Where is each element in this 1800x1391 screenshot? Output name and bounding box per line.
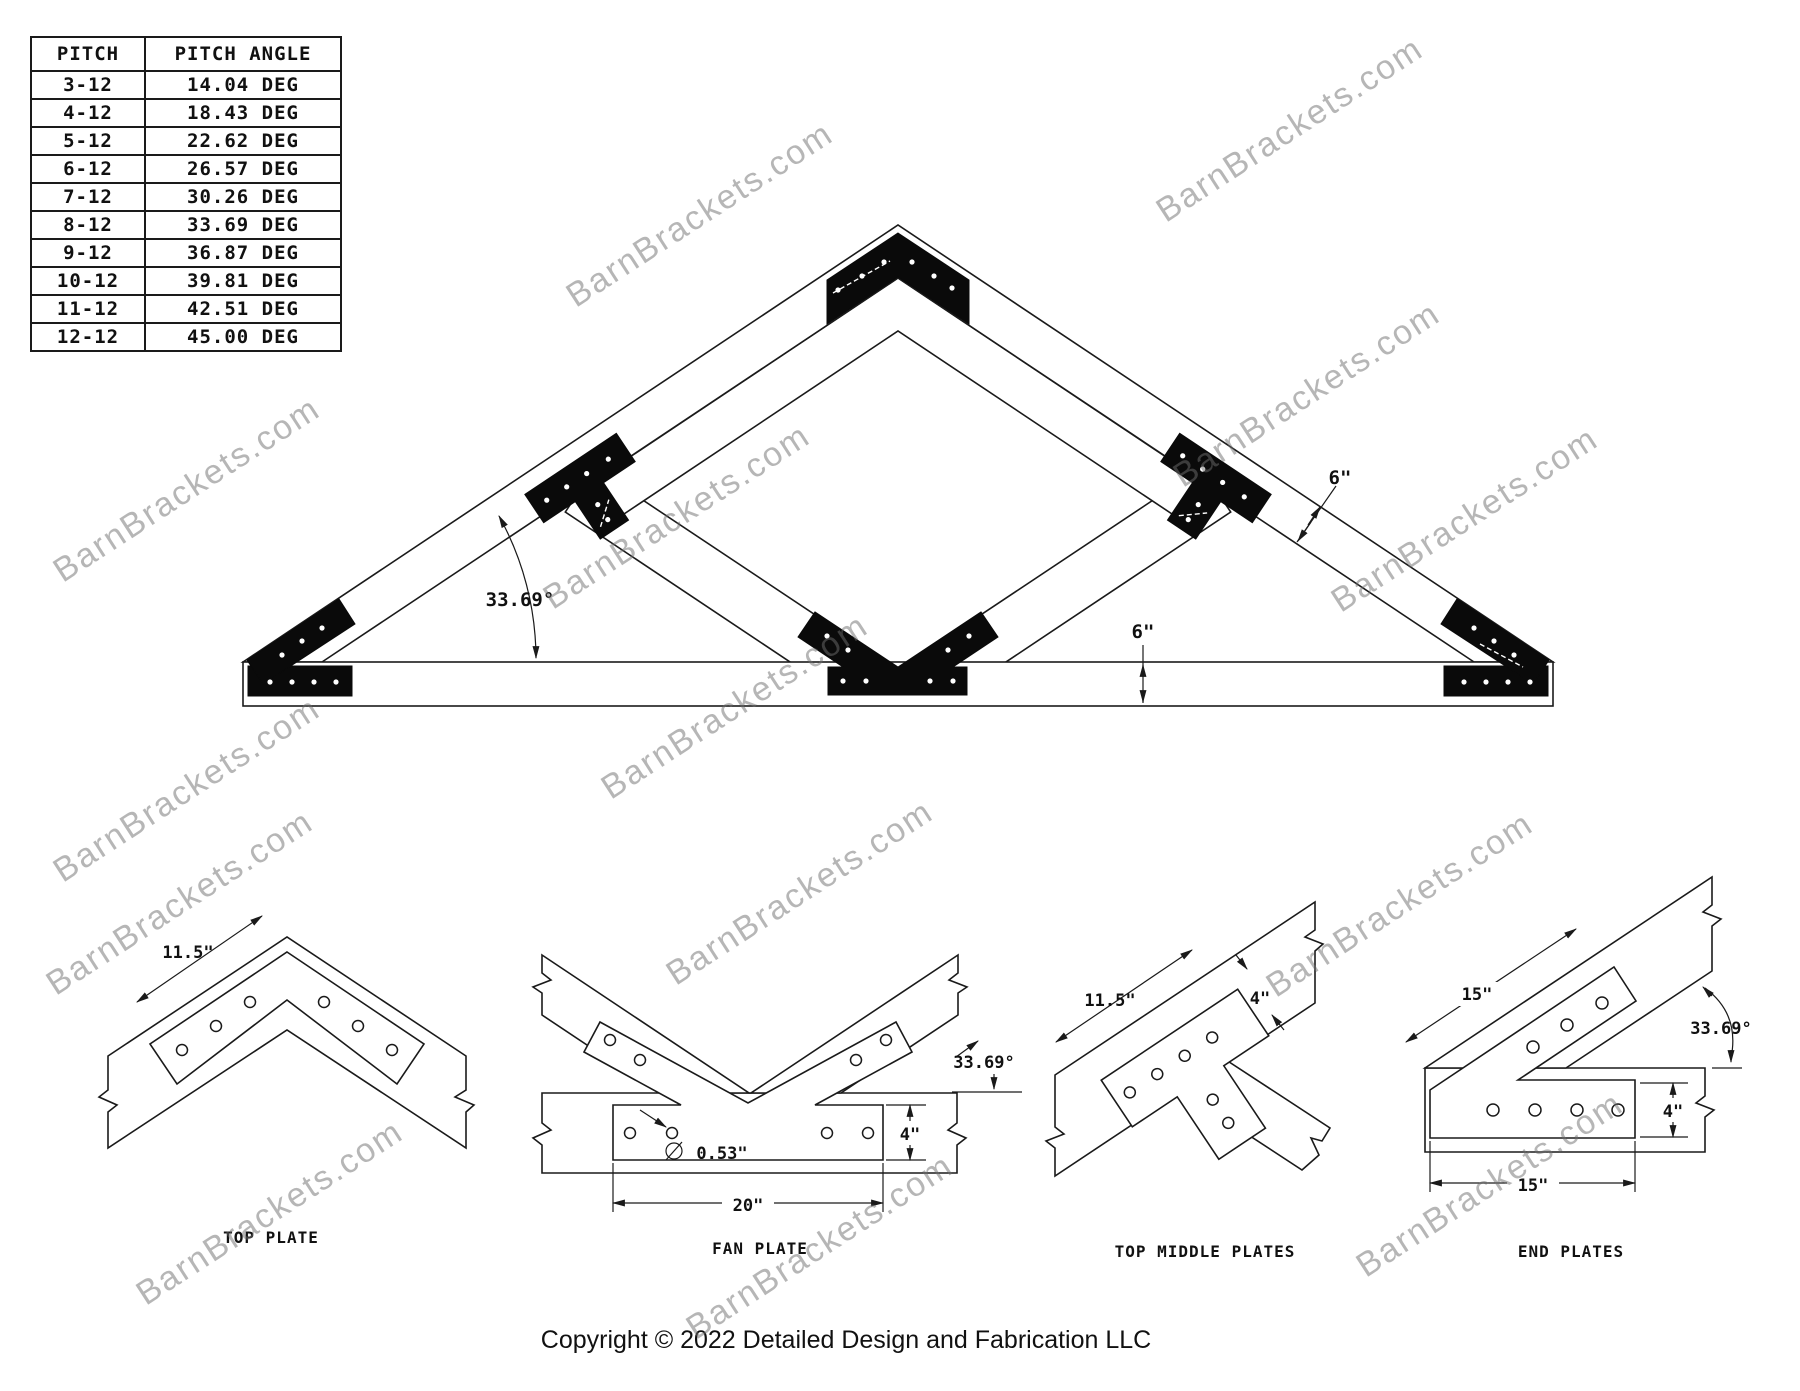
fan-width-value: 20" xyxy=(733,1196,764,1216)
fan-height-value: 4" xyxy=(900,1125,920,1145)
ep-bottom-dim-value: 15" xyxy=(1518,1176,1549,1196)
pitch-angle-cell: 39.81 DEG xyxy=(145,267,341,295)
page-canvas: BarnBrackets.comBarnBrackets.comBarnBrac… xyxy=(0,0,1800,1391)
fan-angle-value: 33.69° xyxy=(953,1053,1014,1073)
pitch-table-row: 3-1214.04 DEG xyxy=(31,71,341,99)
pitch-table-row: 11-1242.51 DEG xyxy=(31,295,341,323)
pitch-table-row: 10-1239.81 DEG xyxy=(31,267,341,295)
pitch-table: PITCH PITCH ANGLE 3-1214.04 DEG4-1218.43… xyxy=(30,36,342,352)
pitch-table-header-row: PITCH PITCH ANGLE xyxy=(31,37,341,71)
pitch-cell: 4-12 xyxy=(31,99,145,127)
top-middle-plates-label: TOP MIDDLE PLATES xyxy=(1115,1242,1296,1261)
truss-angle-value: 33.69° xyxy=(486,589,555,611)
pitch-angle-cell: 33.69 DEG xyxy=(145,211,341,239)
pitch-cell: 5-12 xyxy=(31,127,145,155)
pitch-table-row: 7-1230.26 DEG xyxy=(31,183,341,211)
ep-height-value: 4" xyxy=(1663,1102,1683,1122)
detail-fan-plate: 0.53" 20" 4" 3 xyxy=(533,955,1022,1258)
pitch-table-row: 8-1233.69 DEG xyxy=(31,211,341,239)
pitch-table-row: 12-1245.00 DEG xyxy=(31,323,341,351)
pitch-cell: 7-12 xyxy=(31,183,145,211)
pitch-cell: 9-12 xyxy=(31,239,145,267)
pitch-header: PITCH xyxy=(31,37,145,71)
pitch-cell: 11-12 xyxy=(31,295,145,323)
pitch-angle-cell: 45.00 DEG xyxy=(145,323,341,351)
pitch-table-row: 5-1222.62 DEG xyxy=(31,127,341,155)
detail-end-plates: 15" 33.69° 4" xyxy=(1406,877,1752,1261)
truss-rafter-width-value: 6" xyxy=(1329,467,1352,489)
ep-angle-annotation: 33.69° xyxy=(1690,987,1751,1068)
pitch-table-row: 6-1226.57 DEG xyxy=(31,155,341,183)
pitch-angle-cell: 22.62 DEG xyxy=(145,127,341,155)
pitch-cell: 10-12 xyxy=(31,267,145,295)
pitch-angle-cell: 14.04 DEG xyxy=(145,71,341,99)
detail-top-plate: 11.5" TOP PLATE xyxy=(99,916,474,1247)
fan-angle-annotation: 33.69° xyxy=(952,1041,1022,1092)
pitch-cell: 6-12 xyxy=(31,155,145,183)
pitch-angle-cell: 36.87 DEG xyxy=(145,239,341,267)
truss-diagram: 33.69° 6" 6" xyxy=(243,225,1553,706)
pitch-table-row: 9-1236.87 DEG xyxy=(31,239,341,267)
ep-top-dim-value: 15" xyxy=(1462,985,1493,1005)
copyright-text: Copyright © 2022 Detailed Design and Fab… xyxy=(0,1326,1692,1355)
top-plate-label: TOP PLATE xyxy=(223,1228,319,1247)
tm-width-dim: 4" xyxy=(1250,989,1270,1009)
ep-angle-value: 33.69° xyxy=(1690,1019,1751,1039)
pitch-angle-cell: 18.43 DEG xyxy=(145,99,341,127)
pitch-angle-cell: 30.26 DEG xyxy=(145,183,341,211)
pitch-angle-cell: 42.51 DEG xyxy=(145,295,341,323)
fan-plate-outline xyxy=(584,1022,912,1160)
truss-chord-height-value: 6" xyxy=(1132,621,1155,643)
pitch-angle-cell: 26.57 DEG xyxy=(145,155,341,183)
top-plate-dim: 11.5" xyxy=(162,943,213,963)
end-plates-label: END PLATES xyxy=(1518,1242,1624,1261)
pitch-cell: 12-12 xyxy=(31,323,145,351)
pitch-cell: 3-12 xyxy=(31,71,145,99)
tm-length-dim: 11.5" xyxy=(1084,991,1135,1011)
pitch-angle-header: PITCH ANGLE xyxy=(145,37,341,71)
detail-top-middle-plates: 11.5" 4" TOP MIDDLE PLATES xyxy=(1046,902,1330,1261)
pitch-cell: 8-12 xyxy=(31,211,145,239)
pitch-table-row: 4-1218.43 DEG xyxy=(31,99,341,127)
fan-plate-label: FAN PLATE xyxy=(712,1239,808,1258)
fan-hole-diameter: 0.53" xyxy=(696,1144,747,1164)
